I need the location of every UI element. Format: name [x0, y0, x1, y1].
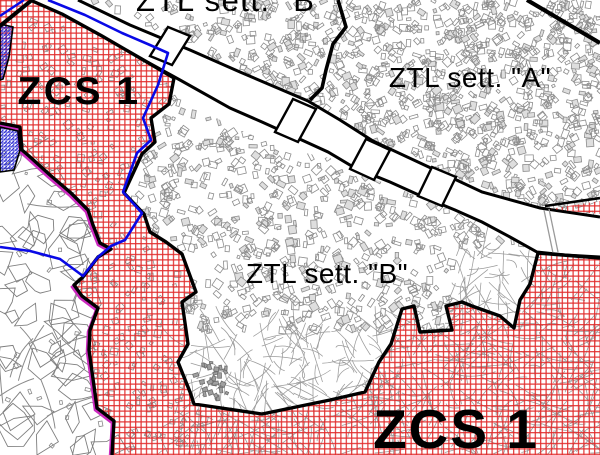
zone-label-zcs1-left: ZCS 1 [17, 70, 140, 113]
zone-label-ztl-b-top: ZTL sett. "B" [136, 0, 328, 18]
zone-label-ztl-b: ZTL sett. "B" [246, 258, 408, 289]
zone-label-zcs1-right: ZCS 1 [373, 398, 539, 455]
florence-zone-map: ZTL sett. "B" ZCS 1 ZTL sett. "A" ZTL se… [0, 0, 600, 455]
map-viewport: ZTL sett. "B" ZCS 1 ZTL sett. "A" ZTL se… [0, 0, 600, 455]
zone-label-ztl-a: ZTL sett. "A" [389, 62, 551, 93]
